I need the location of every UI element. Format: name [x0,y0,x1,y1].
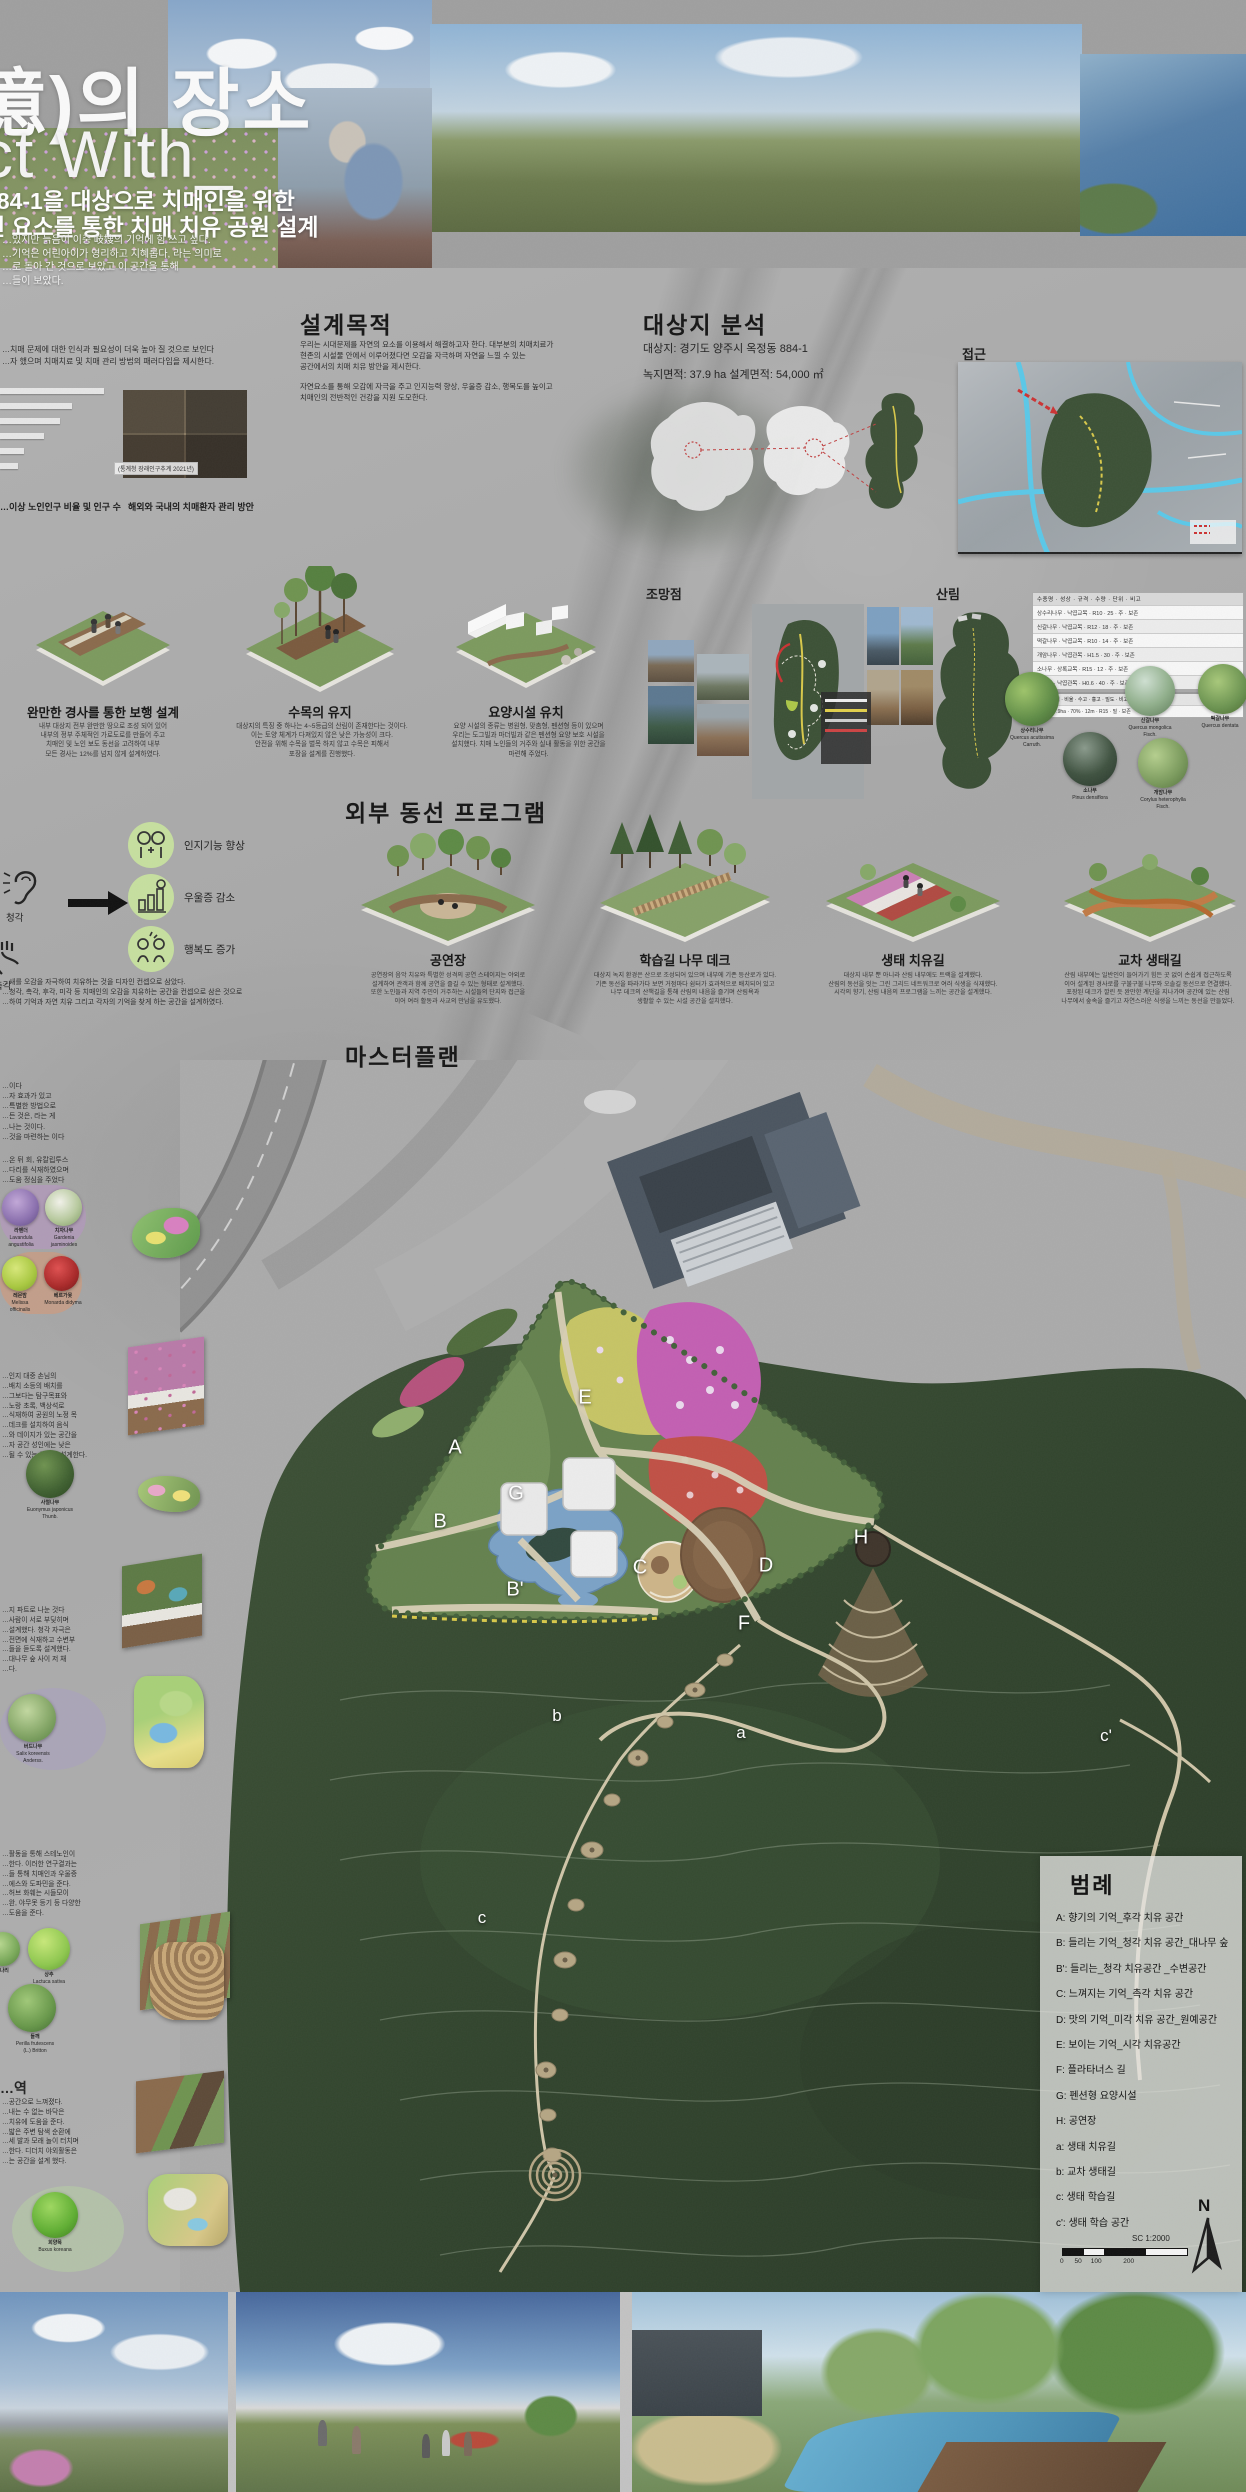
program-desc: 대상지 녹지 환경은 산으로 조성되어 있으며 내부에 기존 등산로가 있다. … [575,972,795,1007]
program-desc: 대상지 내부 뿐 아니라 산림 내부에도 트랙을 설계했다. 산림의 동선을 잇… [805,972,1021,998]
leftcol-text: …지 파트로 나눈 것다 …사람이 서로 부딪히며 …설계했다. 청각 자극은 … [2,1606,126,1675]
poster-intro-text: …있지만 늙음이 이중 岐嫂의 기억에 힘 쓰고 싶다. …기억은 어린아이가 … [2,234,222,288]
plant-photo [28,1928,70,1970]
design-poster: 憶)의 장소 ct With_ 884-1을 대상으로 치매인을 위한 연 요소… [0,0,1246,2492]
courtyard-plan-thumb [148,2174,228,2246]
legend-item: G: 펜션형 요양시설 [1056,2084,1242,2109]
chart-bar [0,463,18,469]
legend-item: E: 보이는 기억_시각 치유공간 [1056,2033,1242,2058]
chart-bar [0,403,72,409]
plant-label: 라벤더Lavandula angustifolia [0,1228,44,1248]
leftcol-text: …온 뒤 회, 유칼립투스 …다리를 식재하였으며 …도움 정심을 주었다 [2,1156,152,1186]
concept-axon-trees [236,566,404,702]
viewpoint-photo [697,704,749,756]
plant-label: 들깨Perilla frutescens (L.) Britton [0,2034,74,2054]
plant-latin: Euonymus japonicus Thunb. [27,1507,73,1520]
leftcol-heading-fragment: …역 [0,2078,27,2098]
poster-title-en: ct With_ [0,116,234,192]
scale-bar [1062,2248,1188,2256]
location-diagram [638,388,938,528]
program-axon-stage [343,818,553,948]
species-photo [1198,664,1246,714]
species-label: 개암나무Corylus heterophylla Fisch. [1124,790,1202,810]
legend-item: b: 교차 생태길 [1056,2160,1242,2185]
plant-photo [26,1450,74,1498]
arrow-right-icon [68,888,130,918]
concept-title: 요양시설 유치 [446,702,606,721]
table-row: 신갈나무 · 낙엽교목 · R12 · 18 · 주 · 보존 [1033,619,1243,633]
plan-label-c: c [478,1908,487,1928]
plant-label: 미나리 [0,1968,22,1975]
chart-bar [0,448,24,454]
plan-label-A: A [448,1437,461,1460]
viewpoint-label: 조망점 [646,584,682,603]
benefit-label: 행복도 증가 [184,942,235,957]
species-name: 떡갈나무 [1211,716,1229,722]
plant-label: 치자나무Gardenia jasminoides [41,1228,87,1248]
section-heading-purpose: 설계목적 [300,306,393,340]
legend-item: a: 생태 치유길 [1056,2135,1242,2160]
benefits-note: …새를 오감을 자극하여 치유하는 것을 디자인 컨셉으로 삼았다. …청각, … [2,978,332,1008]
benefit-label: 우울증 감소 [184,890,235,905]
cognition-icon [128,822,174,868]
legend-item: D: 맛의 기억_미각 치유 공간_원예공간 [1056,2008,1242,2033]
viewpoint-photo [697,654,749,700]
north-arrow-icon [1186,2214,1230,2276]
plant-latin: Gardenia jasminoides [51,1235,77,1248]
program-axon-crosspath [1050,818,1246,948]
species-latin: Quercus mongolica Fisch. [1128,725,1171,738]
legend-item: H: 공연장 [1056,2109,1242,2134]
section-heading-masterplan: 마스터플랜 [345,1038,461,1072]
program-axon-deck [580,812,790,948]
leftcol-text: …이다 …자 효과가 있고 …특별한 방법으로 …든 것은, 라는 게 …나는 … [2,1082,152,1143]
plant-photo [2,1189,39,1226]
plant-name: 버드나무 [24,1744,42,1750]
leftcol-text: …인지 대중 손님의 …배치 소등의 배치를 …그보다는 탐구목표와 …노랑 초… [2,1372,126,1461]
plant-label: 회양목Buxus koreana [18,2240,92,2254]
aging-population-chart [0,388,110,478]
species-latin: Quercus acutissima Carruth. [1010,735,1054,748]
plant-label: 버드나무Salix koreensis Anderss. [0,1744,66,1764]
hand-icon [0,938,24,978]
plan-label-a: a [736,1723,745,1743]
concept-desc: 요양 시설의 종류는 병원형, 맞춤형, 펜션형 등이 있으며 우리는 도그빌과… [436,722,621,759]
plant-photo [32,2192,78,2238]
species-photo [1138,738,1188,788]
program-desc: 산림 내부에는 일반인이 들어가기 힘든 곳 없이 손쉽게 접근하도록 이어 설… [1040,972,1246,1007]
table-header-row: 수종명 · 성상 · 규격 · 수량 · 단위 · 비고 [1033,593,1243,605]
flowerbed-axon-thumb [128,1337,204,1436]
plant-photo [8,1694,56,1742]
render-flower-garden [0,2292,228,2492]
plant-name: 회양목 [48,2240,62,2246]
chart-bar [0,418,60,424]
plant-name: 사철나무 [41,1500,59,1506]
viewpoint-photo [648,686,694,744]
section-heading-programs: 외부 동선 프로그램 [345,794,547,828]
plant-name: 라벤더 [14,1228,28,1234]
concept-desc: 내부 대상지 전부 완만한 땅으로 조성 되어 있어 내부의 정부 주체적인 가… [8,722,198,759]
access-map [958,362,1242,554]
benefit-badge-cognition [128,822,174,868]
concept-desc: 대상지의 특징 중 하나는 4~5등급의 산림이 존재한다는 것이다. 이는 토… [222,722,422,759]
legend-item: B: 들리는 기억_청각 치유 공간_대나무 숲 [1056,1931,1242,1956]
plant-latin: Perilla frutescens (L.) Britton [16,2041,54,2054]
purpose-paragraph-1: 우리는 시대문제를 자연의 요소를 이용해서 해결하고자 한다. 대부분의 치매… [300,340,610,373]
plant-label: 사철나무Euonymus japonicus Thunb. [6,1500,94,1520]
garden-plan-thumb [138,1476,200,1512]
plan-label-b: b [552,1706,561,1726]
render-boardwalk [918,2442,1167,2492]
plan-label-F: F [738,1613,750,1636]
plan-label-G: G [508,1483,524,1506]
species-label: 상수리나무Quercus acutissima Carruth. [995,728,1069,748]
species-photo [1005,672,1059,726]
plan-label-D: D [759,1555,773,1578]
table-row: 떡갈나무 · 낙엽교목 · R10 · 14 · 주 · 보존 [1033,633,1243,647]
benefit-label: 인지기능 향상 [184,838,245,853]
table-row: 상수리나무 · 낙엽교목 · R10 · 25 · 주 · 보존 [1033,605,1243,619]
plant-label: 베르가못Monarda didyma [40,1293,86,1307]
program-title: 생태 치유길 [833,950,993,969]
species-name: 상수리나무 [1020,728,1043,734]
legend-item: c: 생태 학습길 [1056,2185,1242,2210]
legend-item: F: 플라타너스 길 [1056,2058,1242,2083]
benefit-badge-happiness [128,926,174,972]
viewpoint-map-cluster [645,604,935,799]
species-label: 떡갈나무Quercus dentata [1190,716,1246,730]
plan-label-B2: B' [506,1579,523,1602]
leftcol-text: …활동을 통해 스테노인이 …한다. 이러한 연구결과는 …들 통해 치매인과 … [2,1850,136,1919]
species-latin: Corylus heterophylla Fisch. [1140,797,1186,810]
amphitheater-plan-thumb [150,1942,224,2020]
plant-name: 들깨 [30,2034,39,2040]
sense-label-hearing: 청각 [6,910,23,924]
plan-label-B: B [433,1511,446,1534]
plant-latin: Buxus koreana [38,2247,71,2253]
species-name: 소나무 [1083,788,1097,794]
section-heading-site-analysis: 대상지 분석 [643,306,767,340]
chart-source-note: (통계청 장래인구추계 2021년) [114,462,198,475]
render-stream-willows [632,2292,1246,2492]
concept-axon-facility [448,572,604,698]
happiness-icon [128,926,174,972]
scale-label: SC 1:2000 [1132,2234,1170,2243]
plant-latin: Melissa officinalis [10,1300,30,1313]
legend-item: A: 향기의 기억_후각 치유 공간 [1056,1906,1242,1931]
plant-name: 치자나무 [55,1228,73,1234]
viewpoint-photo [867,607,899,665]
plan-label-H: H [854,1527,868,1550]
purpose-paragraph-2: 자연요소를 통해 오감에 자극을 주고 인지능력 향상, 우울증 감소, 행복도… [300,382,610,404]
ear-icon [2,866,38,910]
chart-bar [0,433,44,439]
left-intro-paragraph: …치매 문제에 대한 인식과 필요성이 더욱 높아 질 것으로 보인다 …자 했… [2,344,302,367]
species-label: 소나무Pinus densiflora [1051,788,1129,802]
chart-bar [0,388,104,394]
bottom-render-strip [0,2292,1246,2492]
viewpoint-photo [648,640,694,682]
wetland-panorama-photo [430,24,1082,232]
render-building-silhouette [632,2330,762,2416]
viewpoint-map-legend [821,692,871,764]
pond-plan-thumb [134,1676,204,1768]
plant-latin: Lavandula angustifolia [8,1235,33,1248]
species-label: 신갈나무Quercus mongolica Fisch. [1113,718,1187,738]
concept-title: 수목의 유지 [240,702,400,721]
plan-label-c2: c' [1100,1726,1112,1746]
banner: 憶)의 장소 ct With_ 884-1을 대상으로 치매인을 위한 연 요소… [0,0,1246,268]
sensory-garden-axon-thumb [122,1554,202,1649]
species-latin: Pinus densiflora [1072,795,1108,801]
forest-label: 산림 [936,584,960,603]
legend-item: B': 들리는_청각 치유공간 _수변공간 [1056,1957,1242,1982]
concept-title: 완만한 경사를 통한 보행 설계 [18,702,188,721]
render-lawn-plaza [236,2292,620,2492]
scale-ticks: 0 50 100 200 [1060,2258,1134,2265]
legend-title: 범례 [1070,1868,1242,1900]
caption-dementia-management: 해외와 국내의 치매환자 관리 방안 [128,500,254,513]
access-label: 접근 [962,344,986,363]
deck-axon-thumb [136,2071,224,2154]
species-name: 신갈나무 [1141,718,1159,724]
plan-label-C: C [633,1557,647,1580]
species-photo [1063,732,1117,786]
concept-axon-walkway [28,572,178,698]
plant-name: 베르가못 [54,1293,72,1299]
plant-latin: Salix koreensis Anderss. [16,1751,50,1764]
plant-photo [45,1189,82,1226]
plant-latin: Monarda didyma [44,1300,81,1306]
program-desc: 공연장의 음악 치유와 특별한 성격의 공연 스테이지는 야외로 설계하여 관객… [340,972,556,1007]
program-title: 교차 생태길 [1070,950,1230,969]
river-photo [1080,54,1246,236]
plan-label-E: E [578,1387,591,1410]
legend-item: C: 느껴지는 기억_촉각 치유 공간 [1056,1982,1242,2007]
benefit-badge-mood [128,874,174,920]
caption-aging-population: …이상 노인인구 비율 및 인구 수 [0,500,121,513]
species-photo [1125,666,1175,716]
plant-photo [0,1932,20,1966]
plant-photo [2,1256,37,1291]
legend-panel: 범례 A: 향기의 기억_후각 치유 공간 B: 들리는 기억_청각 치유 공간… [1040,1856,1242,2292]
plant-name: 미나리 [0,1968,9,1974]
plant-name: 상추 [44,1972,53,1978]
site-area-text: 녹지면적: 37.9 ha 설계면적: 54,000 ㎡ [643,366,824,382]
species-latin: Quercus dentata [1202,723,1239,729]
table-row: 개암나무 · 낙엽관목 · H1.5 · 30 · 주 · 보존 [1033,647,1243,661]
plant-label: 레몬밤Melissa officinalis [0,1293,42,1313]
plant-photo [44,1256,79,1291]
leftcol-text: …공간으로 느껴졌다. …내는 수 없는 바닥은 …치유에 도움을 준다. …밟… [2,2098,126,2167]
site-target-text: 대상지: 경기도 양주시 옥정동 884-1 [643,340,808,356]
north-label: N [1198,2196,1210,2216]
viewpoint-photo [867,670,899,725]
mood-chart-icon [128,874,174,920]
program-title: 학습길 나무 데크 [605,950,765,969]
plant-name: 레몬밤 [13,1293,27,1299]
program-axon-flowerpath [810,820,1016,946]
plant-photo [8,1984,56,2032]
species-name: 개암나무 [1154,790,1172,796]
program-title: 공연장 [368,950,528,969]
